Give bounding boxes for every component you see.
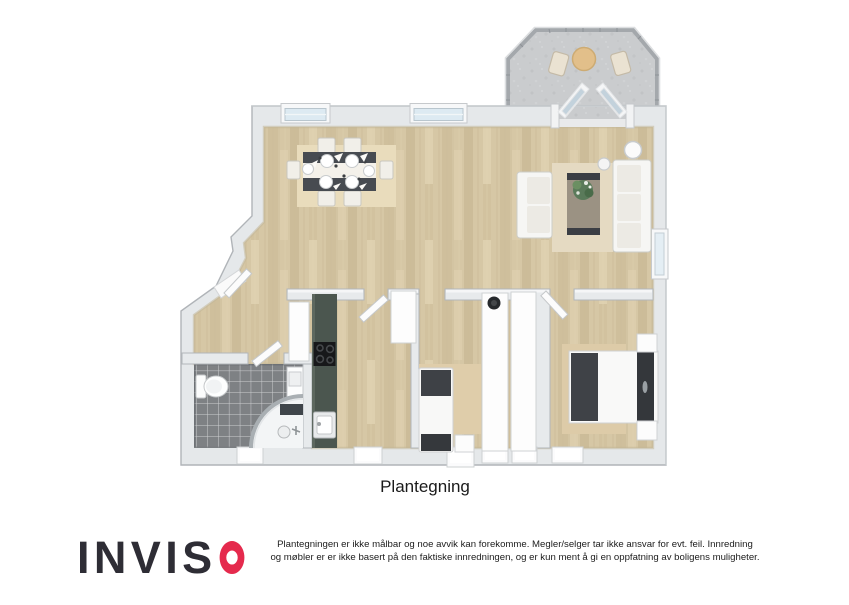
svg-text:INVIS: INVIS bbox=[77, 532, 217, 583]
svg-text:Plantegningen er ikke målbar o: Plantegningen er ikke målbar og noe avvi… bbox=[277, 539, 753, 550]
svg-text:og møbler er er ikke basert på: og møbler er er ikke basert på den fakti… bbox=[270, 552, 759, 563]
svg-text:Plantegning: Plantegning bbox=[380, 477, 470, 496]
